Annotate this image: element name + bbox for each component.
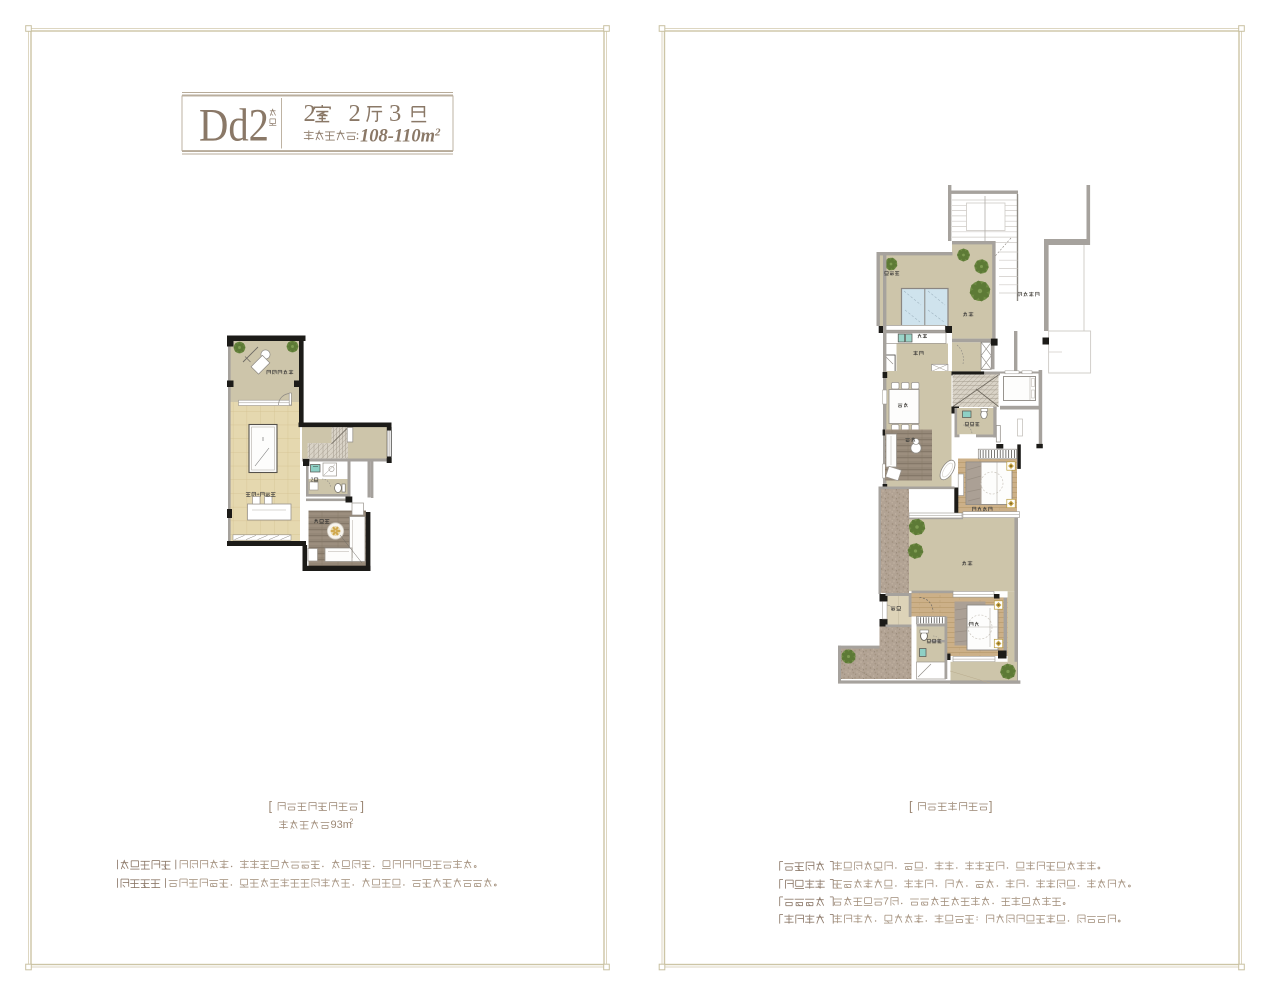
- svg-text:+: +: [257, 492, 260, 498]
- svg-text:]: ]: [361, 800, 364, 814]
- svg-text:3: 3: [389, 100, 401, 127]
- svg-text:]: ]: [989, 800, 992, 814]
- svg-text:108-110m2: 108-110m2: [360, 127, 441, 147]
- svg-text:2: 2: [304, 100, 316, 127]
- svg-text:2: 2: [350, 819, 354, 826]
- svg-text:[: [: [269, 800, 273, 814]
- svg-text:[: [: [909, 800, 913, 814]
- svg-text:2: 2: [311, 477, 314, 483]
- svg-text:2: 2: [349, 100, 361, 127]
- svg-text:Dd2: Dd2: [199, 100, 269, 152]
- svg-text:7: 7: [883, 897, 889, 908]
